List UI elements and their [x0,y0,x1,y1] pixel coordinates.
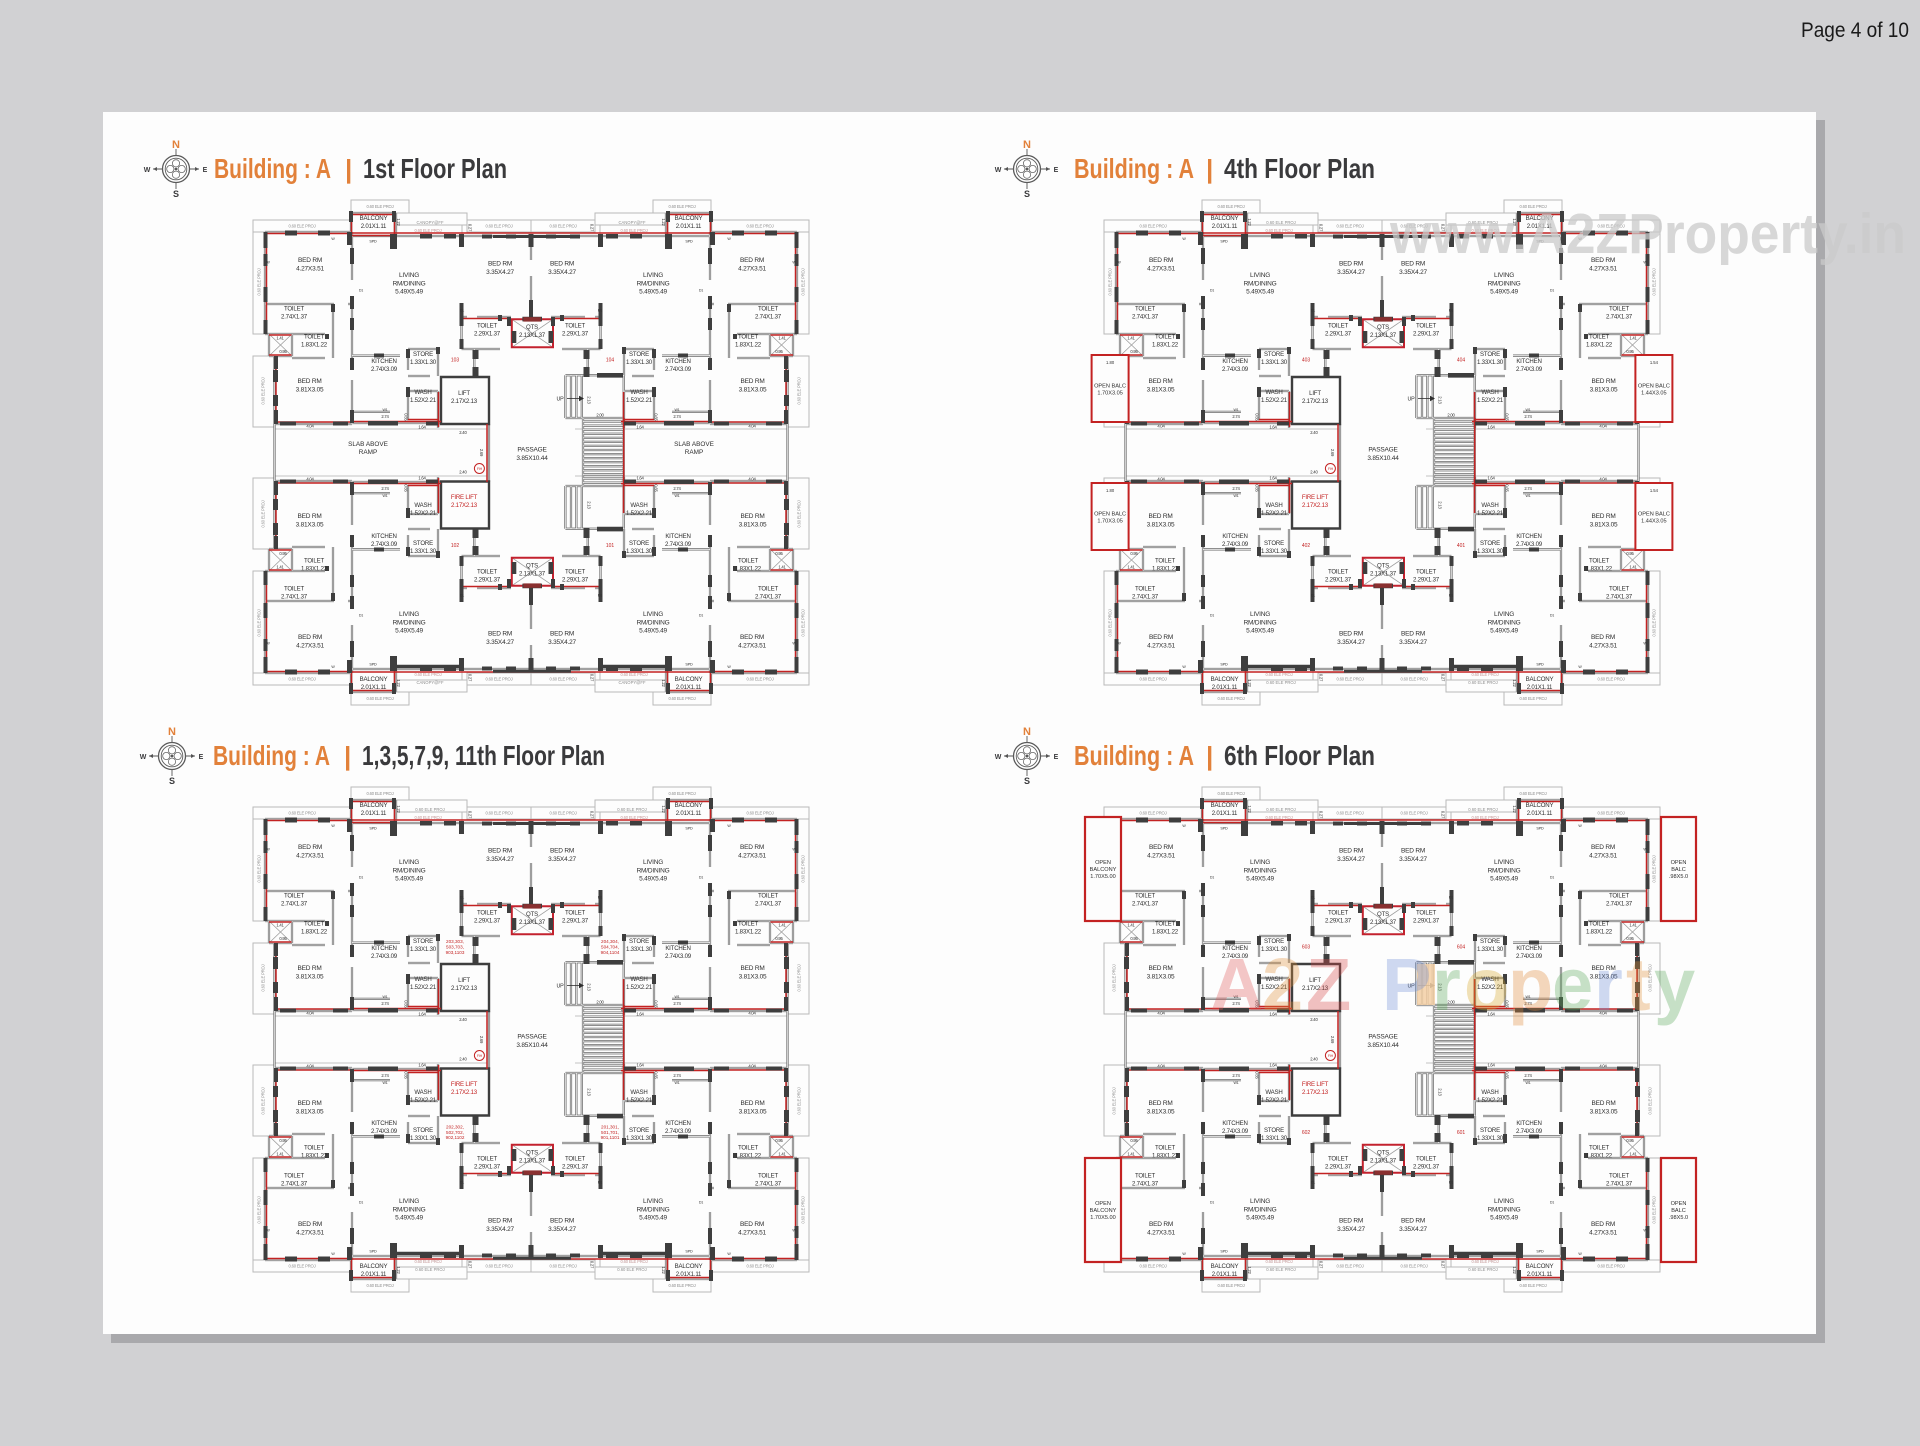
svg-text:Building : A: Building : A [1074,740,1194,771]
svg-text:601: 601 [1457,1130,1466,1136]
svg-text:6th Floor Plan: 6th Floor Plan [1224,740,1375,771]
svg-text:CANOPY@FF: CANOPY@FF [416,680,443,685]
svg-text:0.60 ELE PROJ: 0.60 ELE PROJ [617,1267,647,1272]
svg-text:504,704,: 504,704, [601,945,619,950]
svg-text:SLAB ABOVE: SLAB ABOVE [674,441,714,448]
svg-text:r: r [1432,943,1461,1026]
svg-text:1.70X3.05: 1.70X3.05 [1097,519,1123,525]
svg-text:CANOPY@FF: CANOPY@FF [618,220,645,225]
svg-text:0.60 ELE PROJ: 0.60 ELE PROJ [1266,220,1296,225]
svg-text:t: t [1626,943,1651,1026]
svg-text:p: p [1508,943,1553,1026]
svg-text:403: 403 [1302,358,1311,364]
svg-text:104: 104 [606,358,615,364]
svg-text:Building : A: Building : A [1074,153,1194,184]
svg-text:1.44X3.05: 1.44X3.05 [1641,519,1667,525]
svg-text:4th Floor Plan: 4th Floor Plan [1224,153,1375,184]
svg-text:101: 101 [606,543,615,549]
svg-text:902,1102: 902,1102 [446,1135,465,1140]
svg-text:404: 404 [1457,358,1466,364]
svg-text:402: 402 [1302,543,1311,549]
svg-text:OPEN: OPEN [1095,1201,1111,1207]
svg-text:RAMP: RAMP [359,449,377,456]
svg-text:1st Floor Plan: 1st Floor Plan [363,153,507,184]
svg-text:502,702,: 502,702, [446,1130,464,1135]
svg-text:P: P [1382,943,1431,1026]
svg-text:OPEN: OPEN [1671,860,1687,866]
svg-text:0.60 ELE PROJ: 0.60 ELE PROJ [617,807,647,812]
svg-text:1.44X3.05: 1.44X3.05 [1641,391,1667,397]
svg-text:203,303,: 203,303, [446,939,464,944]
svg-text:2: 2 [1262,943,1303,1026]
svg-text:BALCONY: BALCONY [1090,1208,1117,1214]
svg-text:103: 103 [451,358,460,364]
svg-text:503,703,: 503,703, [446,945,464,950]
svg-text:BALC: BALC [1671,867,1686,873]
svg-text:OPEN BALC: OPEN BALC [1094,512,1126,518]
svg-text:|: | [344,741,351,771]
svg-text:904,1104: 904,1104 [601,950,620,955]
svg-text:0.60 ELE PROJ: 0.60 ELE PROJ [1266,807,1296,812]
svg-text:0.60 ELE PROJ: 0.60 ELE PROJ [1468,807,1498,812]
svg-text:901,1101: 901,1101 [601,1135,620,1140]
svg-text:Z: Z [1306,943,1351,1026]
svg-text:BALC: BALC [1671,1208,1686,1214]
svg-text:0.60 ELE PROJ: 0.60 ELE PROJ [1468,680,1498,685]
svg-text:1.70X5.00: 1.70X5.00 [1090,874,1116,880]
svg-text:www.A2ZProperty.in: www.A2ZProperty.in [1389,202,1906,266]
svg-text:602: 602 [1302,1130,1311,1136]
svg-text:0.60 ELE PROJ: 0.60 ELE PROJ [1266,680,1296,685]
svg-text:903,1103: 903,1103 [446,950,465,955]
svg-text:1.70X5.00: 1.70X5.00 [1090,1215,1116,1221]
svg-text:OPEN: OPEN [1095,860,1111,866]
svg-text:|: | [1206,741,1213,771]
svg-text:CANOPY@FF: CANOPY@FF [416,220,443,225]
svg-text:|: | [345,154,352,184]
svg-text:OPEN BALC: OPEN BALC [1638,384,1670,390]
svg-text:.98X5.0: .98X5.0 [1669,874,1688,880]
svg-text:OPEN BALC: OPEN BALC [1094,384,1126,390]
svg-text:102: 102 [451,543,460,549]
svg-text:1.80: 1.80 [1106,488,1115,493]
svg-text:y: y [1654,943,1695,1026]
svg-text:OPEN: OPEN [1671,1201,1687,1207]
svg-text:|: | [1206,154,1213,184]
svg-text:Building : A: Building : A [213,740,330,771]
svg-text:401: 401 [1457,543,1466,549]
svg-text:RAMP: RAMP [685,449,703,456]
svg-text:1.54: 1.54 [1650,488,1659,493]
svg-text:Page 4 of 10: Page 4 of 10 [1801,19,1909,42]
svg-text:0.60 ELE PROJ: 0.60 ELE PROJ [415,1267,445,1272]
svg-text:0.60 ELE PROJ: 0.60 ELE PROJ [415,807,445,812]
svg-text:1.70X3.05: 1.70X3.05 [1097,391,1123,397]
svg-text:CANOPY@FF: CANOPY@FF [618,680,645,685]
svg-text:1.54: 1.54 [1650,360,1659,365]
svg-text:1,3,5,7,9, 11th Floor Plan: 1,3,5,7,9, 11th Floor Plan [362,740,605,771]
svg-text:201,301,: 201,301, [601,1124,619,1129]
svg-text:e: e [1552,943,1593,1026]
svg-text:o: o [1464,943,1509,1026]
svg-text:A: A [1210,943,1263,1026]
svg-text:0.60 ELE PROJ: 0.60 ELE PROJ [1468,1267,1498,1272]
svg-text:0.60 ELE PROJ: 0.60 ELE PROJ [1266,1267,1296,1272]
svg-text:202,302,: 202,302, [446,1124,464,1129]
svg-text:OPEN BALC: OPEN BALC [1638,512,1670,518]
svg-text:Building : A: Building : A [214,153,331,184]
svg-text:204,304,: 204,304, [601,939,619,944]
svg-text:501,701,: 501,701, [601,1130,619,1135]
svg-text:r: r [1594,943,1623,1026]
svg-text:BALCONY: BALCONY [1090,867,1117,873]
svg-text:SLAB ABOVE: SLAB ABOVE [348,441,388,448]
svg-text:1.80: 1.80 [1106,360,1115,365]
svg-text:.98X5.0: .98X5.0 [1669,1215,1688,1221]
